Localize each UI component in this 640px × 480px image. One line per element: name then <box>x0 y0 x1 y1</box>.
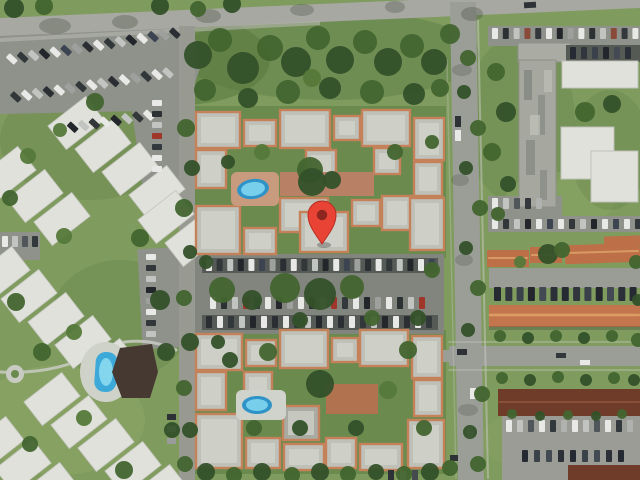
satellite-imagery <box>0 0 640 480</box>
map-viewport[interactable] <box>0 0 640 480</box>
